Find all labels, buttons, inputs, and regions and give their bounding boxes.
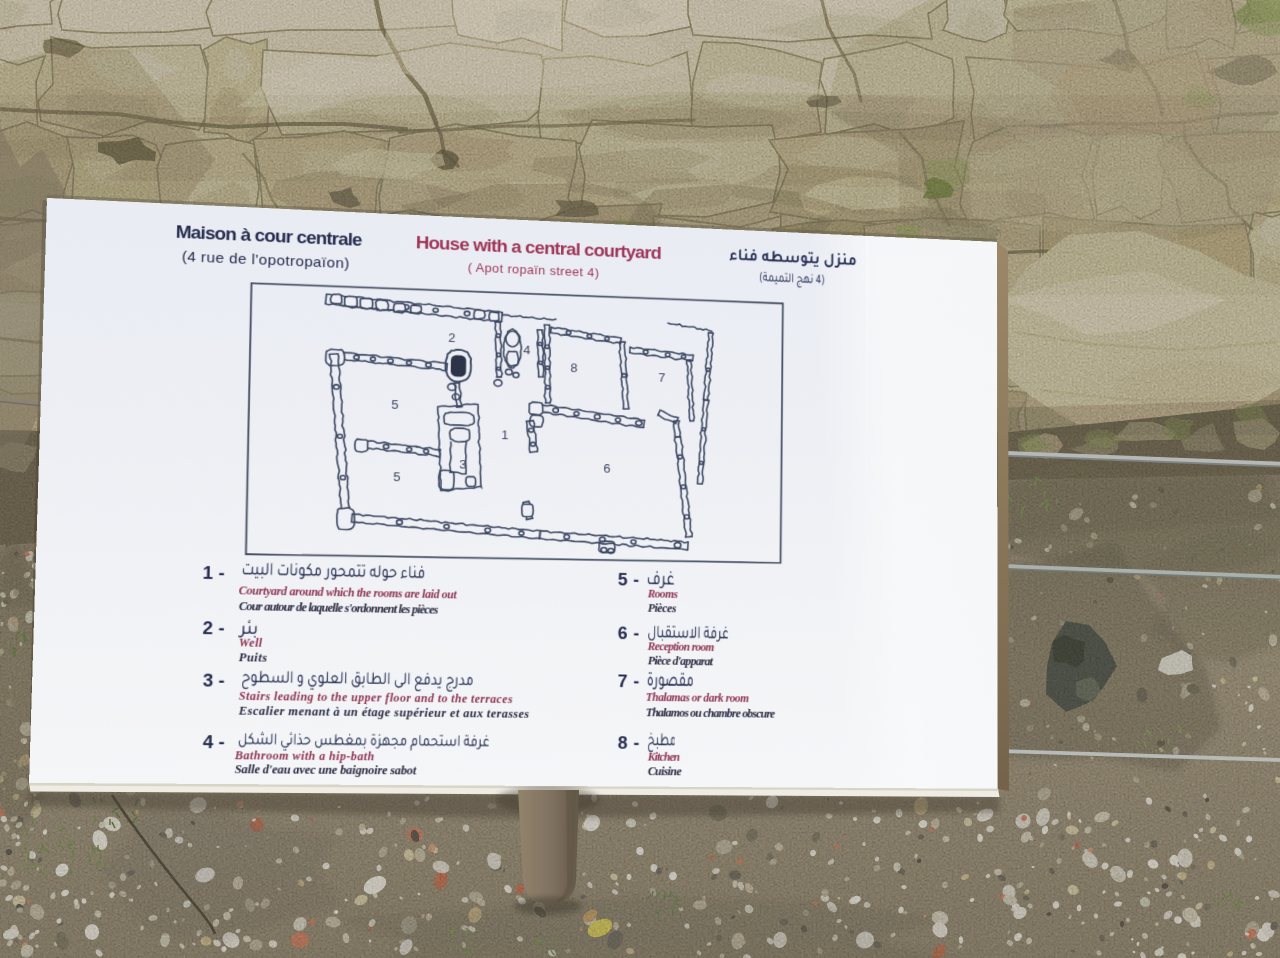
svg-text:5: 5	[393, 470, 401, 485]
svg-text:1: 1	[501, 428, 508, 442]
svg-text:6: 6	[603, 461, 610, 475]
svg-text:5: 5	[391, 398, 399, 412]
svg-text:4: 4	[523, 343, 530, 357]
svg-text:2: 2	[448, 331, 455, 345]
svg-text:8: 8	[570, 361, 577, 375]
svg-text:7: 7	[658, 371, 665, 385]
svg-text:3: 3	[459, 457, 466, 471]
